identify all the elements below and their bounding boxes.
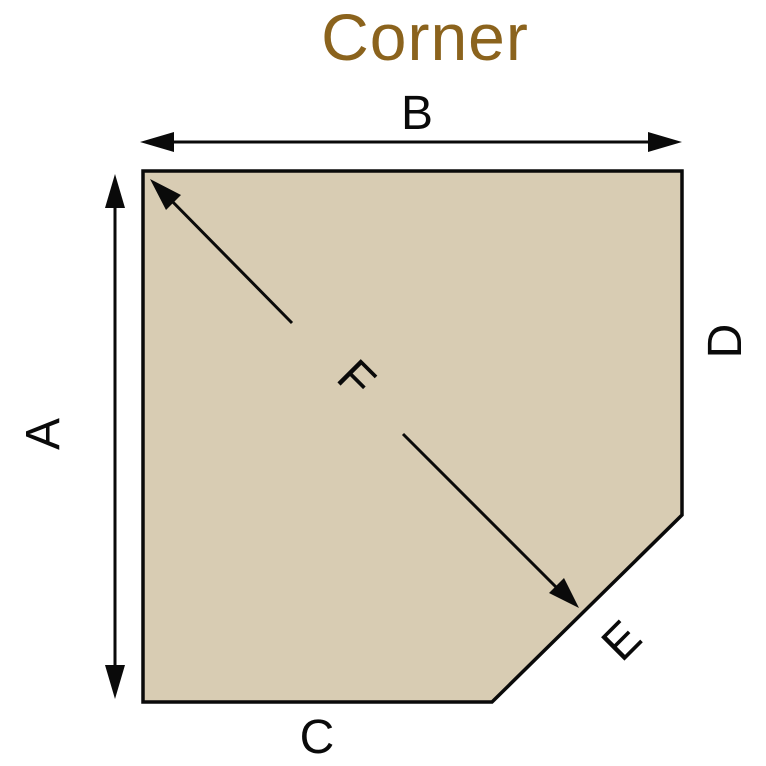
dimension-a: A (17, 174, 125, 699)
diagram-stage: Corner B A F C D E (0, 0, 766, 766)
dimension-e-label: E (592, 611, 652, 671)
dimension-b-label: B (401, 87, 433, 140)
dimension-b-arrowhead-right (648, 132, 682, 152)
page-title: Corner (321, 0, 529, 74)
dimension-a-arrowhead-bottom (105, 665, 125, 699)
dimension-c-label: C (300, 711, 335, 764)
dimension-b: B (140, 87, 682, 152)
dimension-d-label: D (699, 324, 752, 359)
dimension-a-label: A (17, 418, 70, 450)
corner-pad-shape (143, 171, 682, 702)
dimension-a-arrowhead-top (105, 174, 125, 208)
corner-pad-diagram: Corner B A F C D E (0, 0, 766, 766)
dimension-b-arrowhead-left (140, 132, 174, 152)
